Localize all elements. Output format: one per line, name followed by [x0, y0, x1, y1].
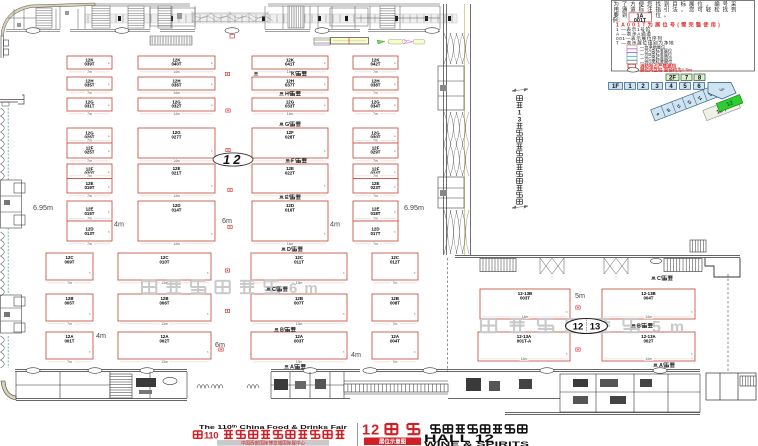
svg-text:006T: 006T	[159, 300, 169, 305]
svg-text:展位内立柱 直径约为1.5m: 展位内立柱 直径约为1.5m	[640, 66, 692, 73]
svg-text:H: H	[285, 92, 289, 98]
svg-text:C: C	[272, 287, 276, 293]
svg-text:7m: 7m	[67, 281, 72, 285]
svg-text:3: 3	[518, 117, 522, 124]
svg-text:14m: 14m	[173, 242, 180, 246]
svg-text:023T: 023T	[370, 185, 380, 190]
svg-text:E: E	[285, 195, 289, 201]
svg-text:14m: 14m	[521, 357, 528, 361]
svg-text:展位示意图: 展位示意图	[379, 437, 407, 445]
svg-text:5m: 5m	[575, 291, 585, 300]
svg-text:7m: 7m	[87, 217, 92, 221]
svg-text:7m: 7m	[373, 159, 378, 163]
svg-text:042T: 042T	[370, 62, 380, 67]
svg-text:004T: 004T	[390, 338, 400, 343]
svg-text:4m: 4m	[114, 220, 124, 229]
svg-text:007T: 007T	[294, 300, 304, 305]
svg-text:7m: 7m	[87, 112, 92, 116]
svg-text:040T: 040T	[171, 62, 181, 67]
svg-text:018T: 018T	[370, 211, 380, 216]
svg-text:7m: 7m	[373, 91, 378, 95]
svg-text:12: 12	[573, 322, 584, 333]
svg-text:110: 110	[204, 431, 218, 442]
svg-text:13m: 13m	[161, 322, 168, 326]
svg-text:WINE & SPIRITS: WINE & SPIRITS	[424, 442, 530, 446]
svg-text:14m: 14m	[287, 242, 294, 246]
svg-text:031T: 031T	[84, 104, 94, 109]
svg-text:036T: 036T	[171, 83, 181, 88]
svg-text:7m: 7m	[67, 360, 72, 364]
svg-text:14m: 14m	[173, 159, 180, 163]
svg-text:039T: 039T	[84, 62, 94, 67]
svg-text:12: 12	[222, 152, 245, 167]
svg-text:UP: UP	[720, 88, 726, 92]
svg-text:028T: 028T	[285, 134, 295, 139]
svg-text:022T: 022T	[285, 170, 295, 175]
svg-text:003T: 003T	[520, 295, 530, 300]
svg-text:13m: 13m	[296, 322, 303, 326]
svg-text:7m: 7m	[87, 159, 92, 163]
svg-text:14m: 14m	[645, 315, 652, 319]
svg-text:037T: 037T	[285, 83, 295, 88]
svg-text:016T: 016T	[285, 207, 295, 212]
svg-text:005T: 005T	[64, 300, 74, 305]
svg-text:029T: 029T	[370, 150, 380, 155]
svg-text:7m: 7m	[393, 360, 398, 364]
svg-text:017T: 017T	[370, 231, 380, 236]
svg-text:034T: 034T	[370, 104, 380, 109]
svg-text:6.95m: 6.95m	[404, 203, 424, 212]
svg-text:014T: 014T	[171, 207, 181, 212]
svg-text:001T-A: 001T-A	[517, 338, 532, 343]
svg-text:7m: 7m	[87, 139, 92, 143]
svg-text:B: B	[280, 328, 284, 334]
svg-text:7m: 7m	[393, 322, 398, 326]
svg-text:011T: 011T	[294, 259, 304, 264]
svg-text:D: D	[287, 247, 291, 253]
svg-text:015T: 015T	[84, 211, 94, 216]
svg-text:B: B	[637, 324, 641, 330]
svg-text:013T: 013T	[84, 231, 94, 236]
svg-text:7m: 7m	[373, 174, 378, 178]
svg-text:14m: 14m	[173, 91, 180, 95]
svg-text:7m: 7m	[373, 70, 378, 74]
svg-text:004T: 004T	[643, 295, 653, 300]
svg-text:002T: 002T	[643, 338, 653, 343]
svg-text:010T: 010T	[159, 259, 169, 264]
svg-text:025T: 025T	[84, 150, 94, 155]
svg-text:7m: 7m	[373, 112, 378, 116]
svg-text:6m: 6m	[289, 280, 325, 297]
svg-text:027T: 027T	[171, 134, 181, 139]
svg-text:5m: 5m	[652, 319, 693, 336]
svg-text:4m: 4m	[96, 331, 106, 340]
svg-text:13: 13	[590, 322, 601, 333]
svg-text:7m: 7m	[67, 322, 72, 326]
svg-text:019T: 019T	[84, 185, 94, 190]
svg-text:009T: 009T	[64, 259, 74, 264]
svg-text:7m: 7m	[87, 242, 92, 246]
svg-text:7m: 7m	[393, 281, 398, 285]
svg-text:14m: 14m	[173, 112, 180, 116]
svg-text:021T: 021T	[171, 170, 181, 175]
svg-text:008T: 008T	[390, 300, 400, 305]
svg-text:1F: 1F	[612, 84, 619, 90]
svg-text:G: G	[285, 122, 289, 128]
svg-text:7m: 7m	[373, 242, 378, 246]
svg-text:C: C	[657, 276, 661, 282]
svg-text:7m: 7m	[87, 194, 92, 198]
svg-text:14m: 14m	[173, 70, 180, 74]
svg-text:7m: 7m	[87, 91, 92, 95]
svg-text:032T: 032T	[171, 104, 181, 109]
svg-text:7m: 7m	[373, 194, 378, 198]
svg-text:14m: 14m	[287, 112, 294, 116]
svg-text:13m: 13m	[296, 360, 303, 364]
svg-text:中国西部国际博览城国际展中心: 中国西部国际博览城国际展中心	[241, 440, 306, 446]
svg-text:6.95m: 6.95m	[33, 203, 53, 212]
svg-text:K: K	[291, 72, 295, 78]
svg-text:4m: 4m	[330, 220, 340, 229]
svg-text:7m: 7m	[373, 217, 378, 221]
svg-text:14m: 14m	[173, 194, 180, 198]
svg-text:033T: 033T	[285, 104, 295, 109]
svg-text:001T: 001T	[64, 338, 74, 343]
svg-text:2F: 2F	[669, 76, 676, 82]
svg-text:12: 12	[362, 423, 380, 439]
svg-text:4m: 4m	[351, 350, 361, 359]
svg-text:7m: 7m	[373, 139, 378, 143]
svg-text:7m: 7m	[87, 70, 92, 74]
svg-text:041T: 041T	[285, 62, 295, 67]
svg-text:13m: 13m	[161, 360, 168, 364]
svg-text:002T: 002T	[159, 338, 169, 343]
svg-text:038T: 038T	[370, 83, 380, 88]
svg-text:012T: 012T	[390, 259, 400, 264]
svg-text:003T: 003T	[294, 338, 304, 343]
svg-text:7m: 7m	[87, 174, 92, 178]
svg-text:14m: 14m	[645, 357, 652, 361]
svg-text:035T: 035T	[84, 83, 94, 88]
svg-text:6m: 6m	[222, 216, 232, 225]
